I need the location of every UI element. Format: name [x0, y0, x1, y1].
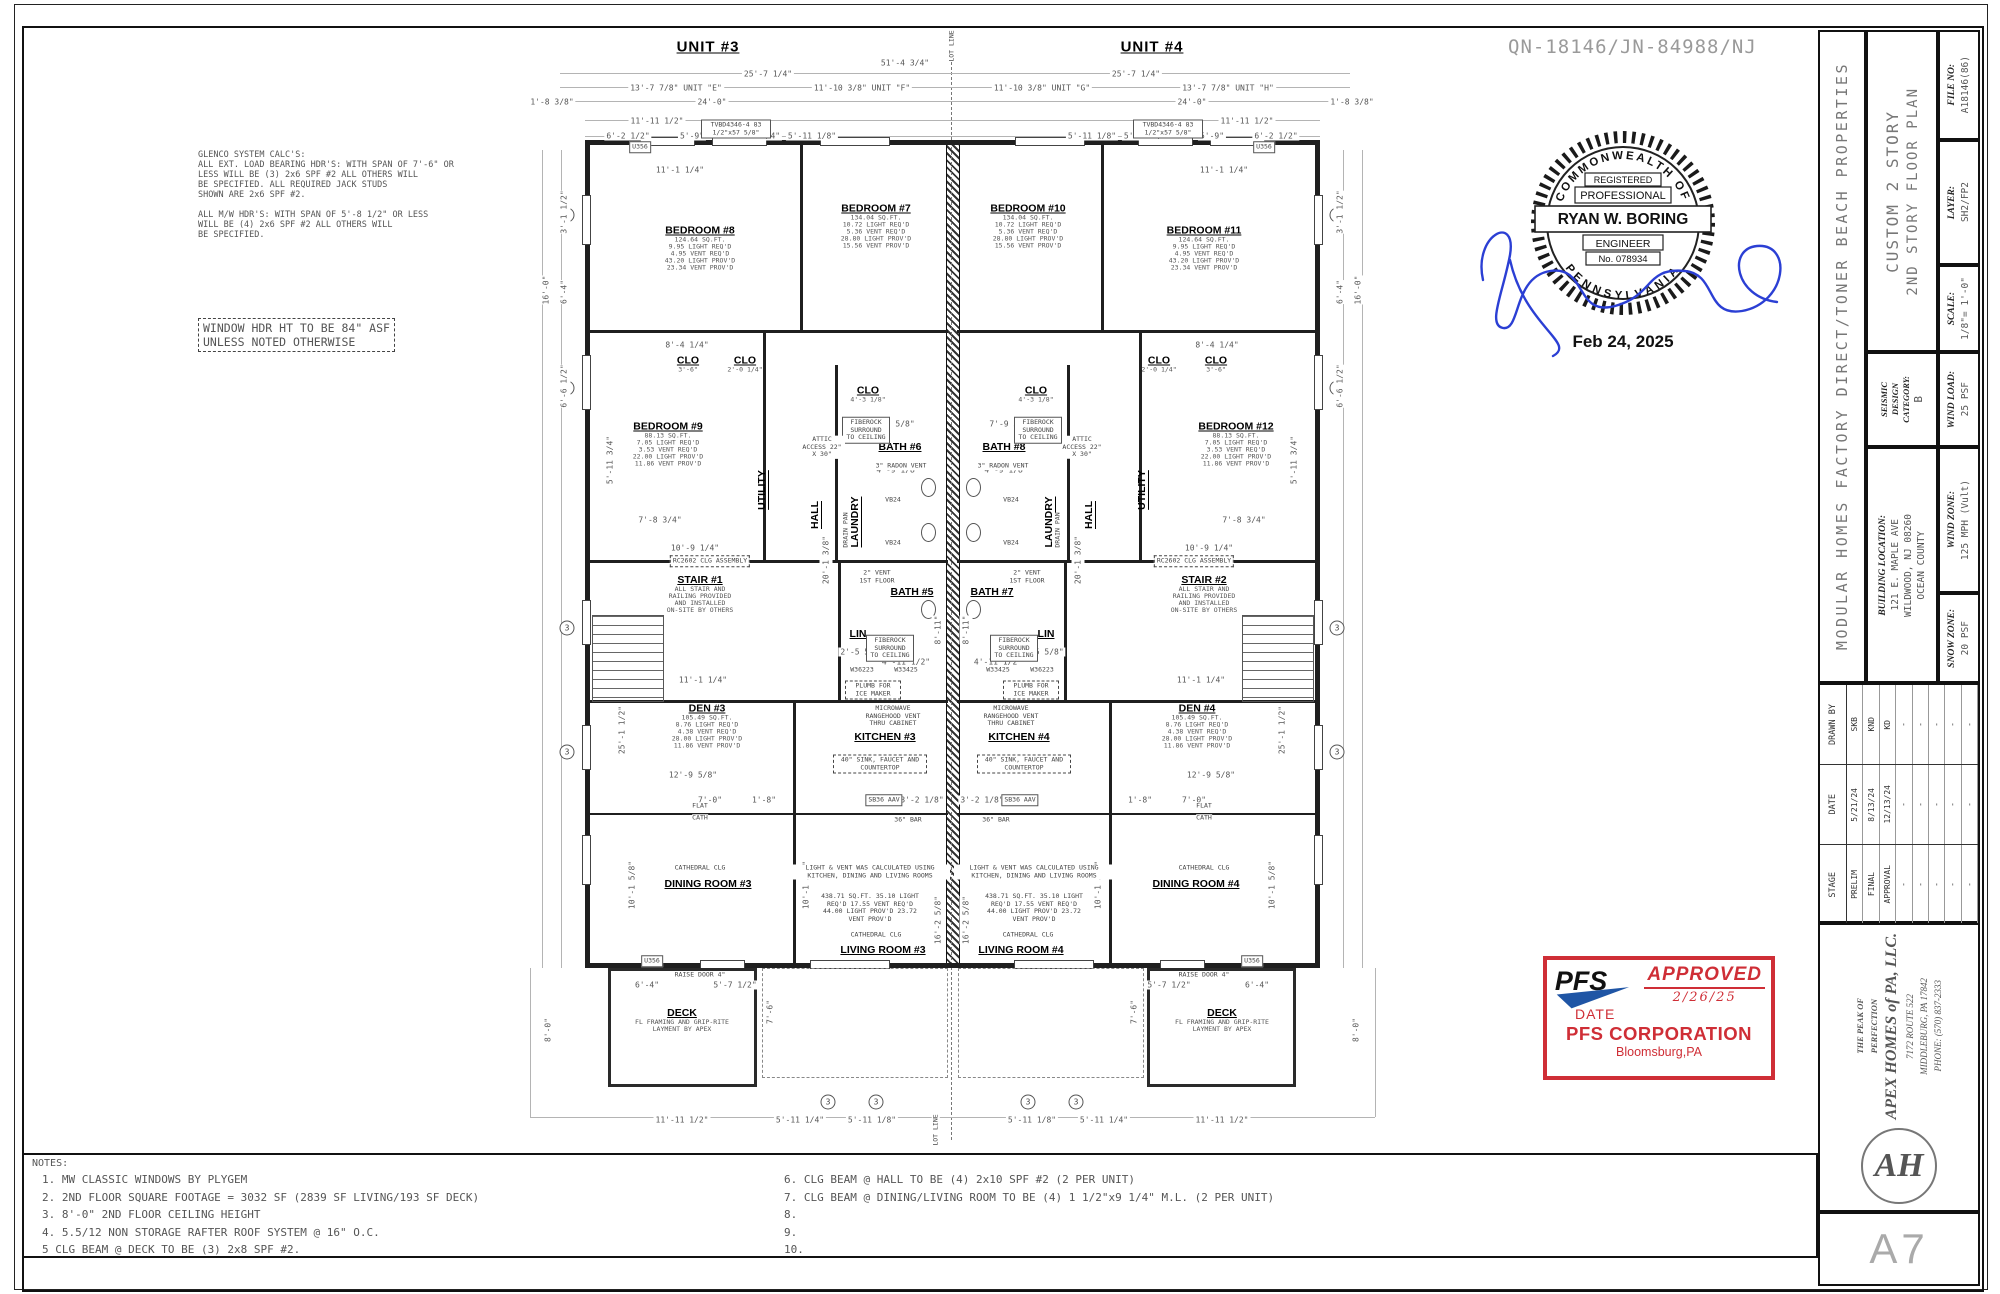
- dimension-label: 5'-11 1/8": [846, 1116, 898, 1125]
- plan-annotation: MICROWAVE RANGEHOOD VENT THRU CABINET: [983, 705, 1039, 728]
- plan-annotation: U356: [1253, 141, 1275, 153]
- apex-monogram: AH: [1874, 1147, 1923, 1185]
- revision-row: STAGEPRELIMFINALAPPROVAL-----: [1820, 845, 1978, 925]
- room-label: DINING ROOM #3: [665, 878, 752, 890]
- wall: [957, 813, 1320, 815]
- plan-annotation: U356: [629, 141, 651, 153]
- window: [582, 195, 591, 245]
- dimension-label: 3'-2 1/8": [958, 796, 1005, 805]
- room-label: DECKFL FRAMING AND GRIP-RITELAYMENT BY A…: [1175, 1007, 1269, 1033]
- room-name: HALL: [1083, 501, 1095, 529]
- revision-cell: -: [1913, 765, 1929, 844]
- plan-annotation: RAISE DOOR 4": [675, 971, 726, 979]
- dimension-label: 20'-1 3/8": [1072, 536, 1085, 584]
- room-label: KITCHEN #4: [988, 731, 1049, 743]
- notes-right-column: 6. CLG BEAM @ HALL TO BE (4) 2x10 SPF #2…: [784, 1171, 1274, 1259]
- room-stat: 11.86 VENT PROV'D: [672, 743, 742, 750]
- revision-cell: FINAL: [1863, 845, 1879, 924]
- dimension-label: 13'-7 7/8" UNIT "E": [628, 84, 724, 93]
- dimension-label: 11'-1 1/4": [677, 676, 729, 685]
- stair-treads: [592, 615, 664, 702]
- unit4-header: UNIT #4: [1121, 39, 1184, 56]
- plan-annotation: 2" VENT 1ST FLOOR: [1009, 570, 1045, 585]
- room-name: DINING ROOM #4: [1153, 878, 1240, 890]
- plan-annotation: 438.71 SQ.FT. 35.10 LIGHT REQ'D 17.55 VE…: [820, 893, 920, 923]
- apex-homes-block: THE PEAK OF PERFECTION APEX HOMES of PA,…: [1818, 923, 1980, 1212]
- window: [1314, 725, 1323, 770]
- building-location-3: OCEAN COUNTY: [1916, 531, 1927, 600]
- window: [582, 725, 591, 770]
- plan-annotation: CATHEDRAL CLG: [1003, 931, 1054, 939]
- room-name: LIVING ROOM #3: [840, 944, 925, 956]
- room-name: UTILITY: [756, 470, 768, 510]
- layer-value: SH2/FP2: [1960, 182, 1971, 222]
- room-label: DEN #4105.49 SQ.FT.8.76 LIGHT REQ'D4.38 …: [1162, 703, 1232, 750]
- plan-annotation: DRAIN PAN: [1054, 512, 1062, 547]
- window-tag-3: 3: [1330, 621, 1345, 636]
- room-name: DINING ROOM #3: [665, 878, 752, 890]
- plan-annotation: FIBEROCK SURROUND TO CEILING: [842, 417, 890, 444]
- dimension-label: 6'-4": [633, 981, 661, 990]
- plan-annotation: 2" VENT 1ST FLOOR: [859, 570, 895, 585]
- plan-annotation: W36223: [1030, 666, 1053, 674]
- dimension-line: [542, 150, 543, 968]
- plan-annotation: 36" BAR: [894, 816, 921, 824]
- dimension-label: 5'-11 1/4": [774, 1116, 826, 1125]
- dimension-label: 7'-6": [1128, 1000, 1141, 1024]
- engineer-seal: COMMONWEALTH OF PENNSYLVANIA REGISTERED …: [1455, 75, 1815, 360]
- dimension-label: 11'-10 3/8" UNIT "F": [812, 84, 912, 93]
- building-location-1: 121 E. MAPLE AVE: [1890, 519, 1901, 611]
- lot-line: [951, 32, 952, 1140]
- dimension-label: 7'-6": [764, 1000, 777, 1024]
- dimension-label: 8'-4 1/4": [1193, 341, 1240, 350]
- window-tag-3: 3: [869, 1095, 884, 1110]
- plan-annotation: LIGHT & VENT WAS CALCULATED USING KITCHE…: [954, 865, 1114, 880]
- room-stat: 15.56 VENT PROV'D: [841, 243, 911, 250]
- room-name: LIN: [850, 628, 867, 640]
- plan-annotation: FLAT: [1196, 802, 1212, 810]
- dimension-label: 8'-11": [960, 616, 973, 645]
- seal-registered: REGISTERED: [1594, 175, 1653, 185]
- room-stat: 2'-0 1/4": [1141, 367, 1176, 374]
- bath-fixture: [921, 523, 936, 542]
- room-stat: 2'-0 1/4": [727, 367, 762, 374]
- revision-cell: -: [1945, 685, 1961, 764]
- window-tag-3: 3: [560, 621, 575, 636]
- scale-value: 1/8"= 1'-0": [1960, 277, 1971, 340]
- dimension-line: [1362, 150, 1363, 968]
- glenco-system-calcs-note: GLENCO SYSTEM CALC'S: ALL EXT. LOAD BEAR…: [198, 150, 454, 240]
- window-tag-3: 3: [1330, 745, 1345, 760]
- dimension-label: 1'-8": [1126, 796, 1154, 805]
- seal-name: RYAN W. BORING: [1558, 211, 1689, 228]
- revision-cell: APPROVAL: [1880, 845, 1896, 924]
- plan-annotation: FLAT: [692, 802, 708, 810]
- dimension-label: 6'-4": [558, 280, 571, 304]
- room-label: STAIR #2ALL STAIR ANDRAILING PROVIDEDAND…: [1171, 574, 1238, 614]
- revision-cell: KND: [1863, 685, 1879, 764]
- plan-annotation: MICROWAVE RANGEHOOD VENT THRU CABINET: [865, 705, 921, 728]
- seal-professional: PROFESSIONAL: [1580, 190, 1666, 202]
- revision-cell: -: [1896, 845, 1912, 924]
- dimension-label: 1'-8 3/8": [1328, 98, 1375, 107]
- dimension-label: 11'-11 1/2": [629, 117, 686, 126]
- room-name: KITCHEN #3: [854, 731, 915, 743]
- dimension-line: [530, 968, 531, 1117]
- bath-fixture: [966, 478, 981, 497]
- room-name: HALL: [809, 501, 821, 529]
- drawing-sheet: QN-18146/JN-84988/NJ GLENCO SYSTEM CALC'…: [0, 0, 2000, 1294]
- notes-heading: NOTES:: [32, 1158, 68, 1169]
- revision-cell: 8/13/24: [1863, 765, 1879, 844]
- revision-header: DATE: [1820, 765, 1847, 844]
- wall: [800, 140, 803, 333]
- dimension-label: 6'-4": [1243, 981, 1271, 990]
- room-label: BEDROOM #1288.13 SQ.FT.7.05 LIGHT REQ'D3…: [1198, 421, 1273, 468]
- dimension-label: 6'-6 1/2": [558, 364, 571, 407]
- dimension-label: 25'-7 1/4": [1110, 70, 1162, 79]
- wall: [835, 365, 838, 563]
- dimension-label: 1'-8 3/8": [528, 98, 575, 107]
- dimension-label: 11'-1 1/4": [1175, 676, 1227, 685]
- revision-cell: -: [1929, 845, 1945, 924]
- project-line1: CUSTOM 2 STORY: [1883, 110, 1902, 273]
- approved-label: APPROVED: [1644, 964, 1765, 989]
- customer-name: MODULAR HOMES FACTORY DIRECT/TONER BEACH…: [1833, 62, 1851, 650]
- dimension-label: 25'-1 1/2": [616, 706, 629, 754]
- room-name: LAUNDRY: [849, 497, 861, 548]
- room-stat: 4'-3 1/8": [1018, 397, 1053, 404]
- wall: [793, 700, 796, 966]
- seal-number: No. 078934: [1598, 254, 1647, 265]
- dimension-label: 8'-11": [932, 616, 945, 645]
- revision-cell: -: [1962, 845, 1978, 924]
- plan-annotation: SB36 AAV: [865, 794, 902, 806]
- wall: [585, 330, 948, 333]
- plan-annotation: SB36 AAV: [1001, 794, 1038, 806]
- plan-annotation: VB24: [885, 496, 901, 504]
- seismic-value: B: [1912, 396, 1925, 403]
- room-stat: 4'-3 1/8": [850, 397, 885, 404]
- notes-left-column: 1. MW CLASSIC WINDOWS BY PLYGEM 2. 2ND F…: [42, 1171, 479, 1259]
- dimension-label: 10'-9 1/4": [1183, 544, 1235, 553]
- window: [582, 835, 591, 885]
- dimension-label: 12'-9 5/8": [1185, 771, 1237, 780]
- bath-fixture: [921, 478, 936, 497]
- plan-annotation: CATH: [1196, 814, 1212, 822]
- revision-cell: -: [1896, 765, 1912, 844]
- plan-annotation: 40" SINK, FAUCET AND COUNTERTOP: [833, 755, 927, 774]
- titleblock-building-location: BUILDING LOCATION: 121 E. MAPLE AVE WILD…: [1866, 447, 1938, 683]
- window-tag-3: 3: [1069, 1095, 1084, 1110]
- room-label: HALL: [809, 501, 821, 529]
- window: [1314, 195, 1323, 245]
- room-label: UTILITY: [1136, 470, 1148, 510]
- plan-annotation: VB24: [1003, 539, 1019, 547]
- dimension-label: 3'-1 1/2": [1334, 190, 1347, 233]
- wall: [838, 560, 841, 703]
- plan-annotation: PLUMB FOR ICE MAKER: [845, 681, 901, 700]
- seal-engineer: ENGINEER: [1596, 238, 1651, 250]
- plan-annotation: RC2602 CLG ASSEMBLY: [1154, 555, 1234, 567]
- dimension-line: [548, 101, 1356, 102]
- room-label: BEDROOM #8124.64 SQ.FT.9.95 LIGHT REQ'D4…: [665, 225, 735, 272]
- plan-annotation: W33425: [986, 666, 1009, 674]
- revision-cell: SKB: [1847, 685, 1863, 764]
- plan-annotation: FIBEROCK SURROUND TO CEILING: [1014, 417, 1062, 444]
- plan-annotation: TVBD4346-4 83 1/2"x57 5/8": [1133, 120, 1203, 139]
- file-no-value: A18146(86): [1960, 56, 1971, 113]
- plan-annotation: FIBEROCK SURROUND TO CEILING: [990, 635, 1038, 662]
- revision-cell: -: [1929, 685, 1945, 764]
- titleblock-scale: SCALE: 1/8"= 1'-0": [1938, 265, 1980, 352]
- wall: [1109, 700, 1112, 966]
- room-label: UTILITY: [756, 470, 768, 510]
- dimension-label: 11'-1 1/4": [1198, 166, 1250, 175]
- wall: [957, 560, 1320, 563]
- building-location-2: WILDWOOD, NJ 08260: [1903, 514, 1914, 617]
- plan-annotation: VB24: [885, 539, 901, 547]
- room-label: CLO4'-3 1/8": [850, 385, 885, 404]
- mate-wall: [946, 140, 960, 968]
- room-label: LIVING ROOM #4: [978, 944, 1063, 956]
- dimension-label: 11'-11 1/2": [1194, 1116, 1251, 1125]
- room-label: BATH #7: [971, 586, 1014, 598]
- plan-annotation: TVBD4346-4 83 1/2"x57 5/8": [701, 120, 771, 139]
- seal-date: Feb 24, 2025: [1572, 332, 1673, 351]
- plan-annotation: ATTIC ACCESS 22" X 30": [799, 436, 845, 459]
- revision-cell: -: [1962, 765, 1978, 844]
- dimension-label: 6'-2 1/2": [1252, 132, 1299, 141]
- window-tag-3: 3: [821, 1095, 836, 1110]
- revision-row: DATE5/21/248/13/2412/13/24-----: [1820, 765, 1978, 845]
- date-label: DATE: [1575, 1006, 1765, 1022]
- dimension-label: 1'-8": [750, 796, 778, 805]
- window-header-note: WINDOW HDR HT TO BE 84" ASF UNLESS NOTED…: [198, 318, 395, 352]
- dimension-label: 7'-8 3/4": [1220, 516, 1267, 525]
- pfs-corporation-label: PFS CORPORATION: [1553, 1023, 1765, 1045]
- dimension-label: 10'-1 5/8": [1266, 861, 1279, 909]
- dimension-line: [1343, 150, 1344, 968]
- titleblock-project: CUSTOM 2 STORY 2ND STORY FLOOR PLAN: [1866, 30, 1938, 352]
- revision-row: DRAWN BYSKBKNDKD-----: [1820, 685, 1978, 765]
- pfs-city-label: Bloomsburg,PA: [1553, 1045, 1765, 1059]
- revision-header: DRAWN BY: [1820, 685, 1847, 764]
- dimension-label: 5'-11 1/8": [1006, 1116, 1058, 1125]
- room-stat: ON-SITE BY OTHERS: [667, 607, 734, 614]
- dimension-line: [560, 73, 1350, 74]
- dimension-label: 5'-11 1/8": [786, 132, 838, 141]
- approval-date-handwritten: 2/26/25: [1644, 990, 1765, 1005]
- revision-cell: -: [1896, 685, 1912, 764]
- room-label: DEN #3105.49 SQ.FT.8.76 LIGHT REQ'D4.38 …: [672, 703, 742, 750]
- dimension-label: 10'-9 1/4": [669, 544, 721, 553]
- plan-annotation: U356: [641, 955, 663, 967]
- dimension-label: 20'-1 3/8": [820, 536, 833, 584]
- room-label: BEDROOM #11124.64 SQ.FT.9.95 LIGHT REQ'D…: [1167, 225, 1242, 272]
- plan-annotation: 36" BAR: [982, 816, 1009, 824]
- titleblock-seismic: SEISMIC DESIGN CATEGORY: B: [1866, 352, 1938, 447]
- plan-annotation: ATTIC ACCESS 22" X 30": [1059, 436, 1105, 459]
- dimension-label: 16'-0": [540, 276, 553, 305]
- plan-annotation: CATHEDRAL CLG: [1179, 864, 1230, 872]
- patio-dashed-outline: [958, 968, 1144, 1078]
- room-name: UTILITY: [1136, 470, 1148, 510]
- dimension-label: 8'-4 1/4": [663, 341, 710, 350]
- patio-dashed-outline: [762, 968, 948, 1078]
- window: [1314, 355, 1323, 410]
- plan-annotation: RAISE DOOR 4": [1179, 971, 1230, 979]
- titleblock-snow-zone: SNOW ZONE: 20 PSF: [1938, 593, 1980, 683]
- revision-cell: KD: [1880, 685, 1896, 764]
- dimension-label: 10'-1 5/8": [626, 861, 639, 909]
- room-name: KITCHEN #4: [988, 731, 1049, 743]
- wall: [1067, 365, 1070, 563]
- room-stat: 11.86 VENT PROV'D: [633, 461, 703, 468]
- plan-annotation: LOT LINE: [948, 30, 956, 61]
- plan-annotation: RC2602 CLG ASSEMBLY: [670, 555, 750, 567]
- plan-annotation: LOT LINE: [932, 1114, 940, 1145]
- dimension-label: 6'-6 1/2": [1334, 364, 1347, 407]
- general-notes-box: NOTES: 1. MW CLASSIC WINDOWS BY PLYGEM 2…: [22, 1153, 1818, 1258]
- plan-annotation: W33425: [894, 666, 917, 674]
- window: [582, 355, 591, 410]
- room-label: CLO2'-0 1/4": [1141, 355, 1176, 374]
- room-label: BEDROOM #988.13 SQ.FT.7.05 LIGHT REQ'D3.…: [633, 421, 703, 468]
- wall: [585, 560, 948, 563]
- job-number: QN-18146/JN-84988/NJ: [1508, 36, 1757, 58]
- room-label: BATH #5: [891, 586, 934, 598]
- dimension-line: [585, 120, 1320, 121]
- revision-cell: -: [1913, 685, 1929, 764]
- wind-zone-value: 125 MPH (Vult): [1960, 480, 1971, 560]
- dimension-label: 24'-0": [696, 98, 729, 107]
- revision-cell: -: [1962, 685, 1978, 764]
- room-label: HALL: [1083, 501, 1095, 529]
- plan-annotation: 3" RADON VENT: [869, 462, 933, 470]
- plan-annotation: VB24: [1003, 496, 1019, 504]
- dimension-label: 16'-2 5/8": [932, 896, 945, 944]
- sheet-number-cell: A7: [1818, 1212, 1980, 1286]
- apex-logo-circle: AH: [1861, 1128, 1937, 1204]
- revision-cell: -: [1945, 845, 1961, 924]
- dimension-label: 11'-1 1/4": [654, 166, 706, 175]
- plan-annotation: U356: [1241, 955, 1263, 967]
- room-label: CLO3'-6": [677, 355, 699, 374]
- pfs-approval-stamp: PFS APPROVED 2/26/25 DATE PFS CORPORATIO…: [1543, 956, 1775, 1080]
- dimension-label: 6'-2 1/2": [604, 132, 651, 141]
- room-stat: 23.34 VENT PROV'D: [1167, 265, 1242, 272]
- plan-annotation: PLUMB FOR ICE MAKER: [1003, 681, 1059, 700]
- room-stat: LAYMENT BY APEX: [635, 1026, 729, 1033]
- room-stat: 15.56 VENT PROV'D: [990, 243, 1065, 250]
- pfs-logo: PFS: [1553, 964, 1638, 1012]
- room-stat: 23.34 VENT PROV'D: [665, 265, 735, 272]
- dimension-label: 3'-1 1/2": [558, 190, 571, 233]
- room-label: DINING ROOM #4: [1153, 878, 1240, 890]
- plan-annotation: W36223: [850, 666, 873, 674]
- plan-annotation: LIGHT & VENT WAS CALCULATED USING KITCHE…: [790, 865, 950, 880]
- project-line2: 2ND STORY FLOOR PLAN: [1905, 87, 1921, 296]
- plan-annotation: 3" RADON VENT: [971, 462, 1035, 470]
- dimension-label: 25'-1 1/2": [1276, 706, 1289, 754]
- room-label: LAUNDRY: [849, 497, 861, 548]
- titleblock-wind-zone: WIND ZONE: 125 MPH (Vult): [1938, 447, 1980, 593]
- dimension-label: 6'-4": [1334, 280, 1347, 304]
- revision-cell: -: [1913, 845, 1929, 924]
- revision-cell: PRELIM: [1847, 845, 1863, 924]
- revision-cell: 12/13/24: [1880, 765, 1896, 844]
- dimension-label: 8'-0": [1350, 1018, 1363, 1042]
- dimension-label: 11'-10 3/8" UNIT "G": [992, 84, 1092, 93]
- dimension-label: 16'-2 5/8": [960, 896, 973, 944]
- window: [1314, 600, 1323, 645]
- revision-cell: 5/21/24: [1847, 765, 1863, 844]
- dimension-label: 8'-0": [542, 1018, 555, 1042]
- room-stat: 11.86 VENT PROV'D: [1162, 743, 1232, 750]
- room-label: BEDROOM #10134.04 SQ.FT.10.72 LIGHT REQ'…: [990, 203, 1065, 250]
- titleblock-customer: MODULAR HOMES FACTORY DIRECT/TONER BEACH…: [1818, 30, 1866, 683]
- window-tag-3: 3: [560, 745, 575, 760]
- room-stat: LAYMENT BY APEX: [1175, 1026, 1269, 1033]
- plan-annotation: 40" SINK, FAUCET AND COUNTERTOP: [977, 755, 1071, 774]
- room-stat: 11.86 VENT PROV'D: [1198, 461, 1273, 468]
- revision-table: DRAWN BYSKBKNDKD-----DATE5/21/248/13/241…: [1818, 683, 1980, 923]
- room-stat: 3'-6": [1205, 367, 1227, 374]
- window: [582, 600, 591, 645]
- dimension-line: [1375, 968, 1376, 1117]
- sheet-number: A7: [1869, 1225, 1928, 1273]
- room-label: CLO4'-3 1/8": [1018, 385, 1053, 404]
- plan-annotation: 438.71 SQ.FT. 35.10 LIGHT REQ'D 17.55 VE…: [984, 893, 1084, 923]
- dimension-label: 16'-0": [1352, 276, 1365, 305]
- wind-load-value: 25 PSF: [1960, 382, 1971, 416]
- titleblock-layer: LAYER: SH2/FP2: [1938, 140, 1980, 265]
- room-label: BEDROOM #7134.04 SQ.FT.10.72 LIGHT REQ'D…: [841, 203, 911, 250]
- room-label: CLO2'-0 1/4": [727, 355, 762, 374]
- room-stat: ON-SITE BY OTHERS: [1171, 607, 1238, 614]
- revision-cell: -: [1945, 765, 1961, 844]
- dimension-label: 11'-11 1/2": [1219, 117, 1276, 126]
- revision-header: STAGE: [1820, 845, 1847, 924]
- dimension-label: 5'-7 1/2": [1145, 981, 1192, 990]
- dimension-label: 5'-7 1/2": [711, 981, 758, 990]
- wall: [1064, 560, 1067, 703]
- dimension-label: 11'-11 1/2": [654, 1116, 711, 1125]
- room-label: CLO3'-6": [1205, 355, 1227, 374]
- dimension-label: 7'-8 3/4": [636, 516, 683, 525]
- room-label: DECKFL FRAMING AND GRIP-RITELAYMENT BY A…: [635, 1007, 729, 1033]
- room-stat: 3'-6": [677, 367, 699, 374]
- window: [1314, 835, 1323, 885]
- dimension-line: [561, 150, 562, 968]
- bath-fixture: [966, 523, 981, 542]
- dimension-label: 5'-11 3/4": [604, 436, 617, 484]
- unit3-header: UNIT #3: [677, 39, 740, 56]
- dimension-label: 51'-4 3/4": [879, 59, 931, 68]
- room-label: LIN: [1038, 628, 1055, 640]
- room-name: BATH #7: [971, 586, 1014, 598]
- plan-annotation: CATHEDRAL CLG: [675, 864, 726, 872]
- plan-annotation: CATH: [692, 814, 708, 822]
- stair-treads: [1242, 615, 1314, 702]
- dimension-label: 13'-7 7/8" UNIT "H": [1180, 84, 1276, 93]
- dimension-label: 3'-2 1/8": [898, 796, 945, 805]
- titleblock-wind-load: WIND LOAD: 25 PSF: [1938, 352, 1980, 447]
- room-label: LIVING ROOM #3: [840, 944, 925, 956]
- dimension-label: 24'-0": [1176, 98, 1209, 107]
